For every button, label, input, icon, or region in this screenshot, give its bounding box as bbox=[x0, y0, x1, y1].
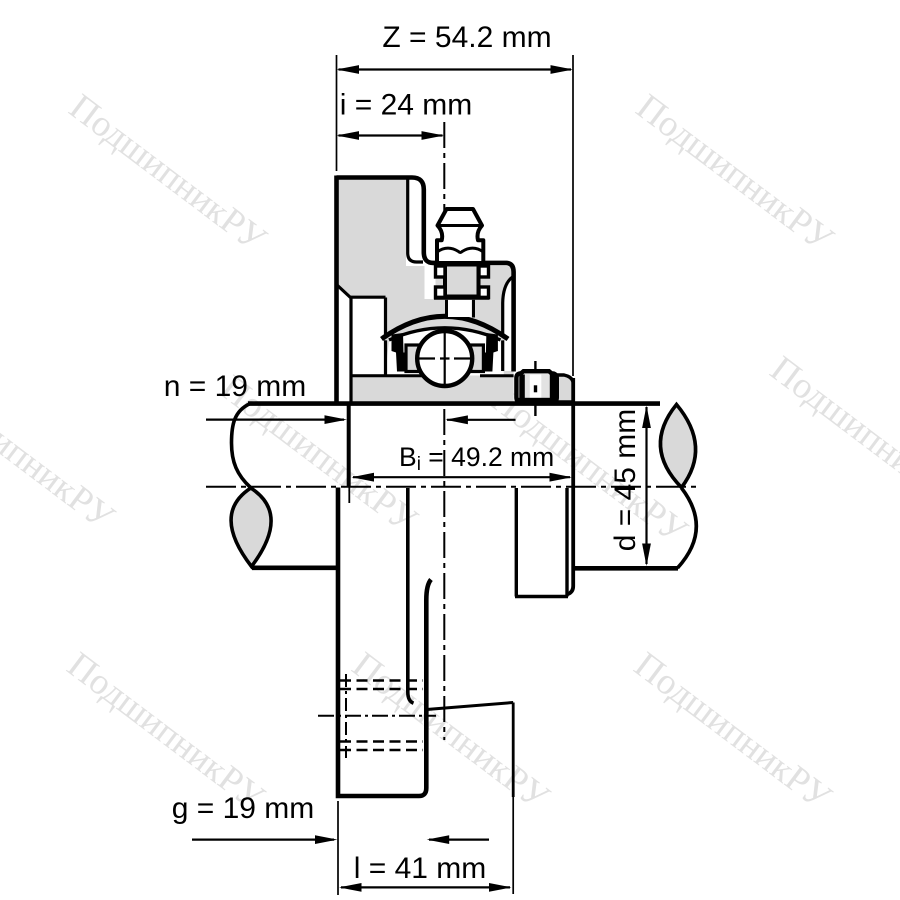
svg-text:g = 19 mm: g = 19 mm bbox=[172, 792, 315, 825]
svg-text:n = 19 mm: n = 19 mm bbox=[164, 370, 307, 403]
svg-text:d = 45 mm: d = 45 mm bbox=[609, 409, 642, 552]
svg-text:Z = 54.2 mm: Z = 54.2 mm bbox=[382, 21, 551, 54]
svg-text:i = 24 mm: i = 24 mm bbox=[340, 89, 473, 122]
svg-text:l = 41 mm: l = 41 mm bbox=[354, 852, 487, 885]
svg-text:Bi = 49.2 mm: Bi = 49.2 mm bbox=[399, 442, 554, 475]
